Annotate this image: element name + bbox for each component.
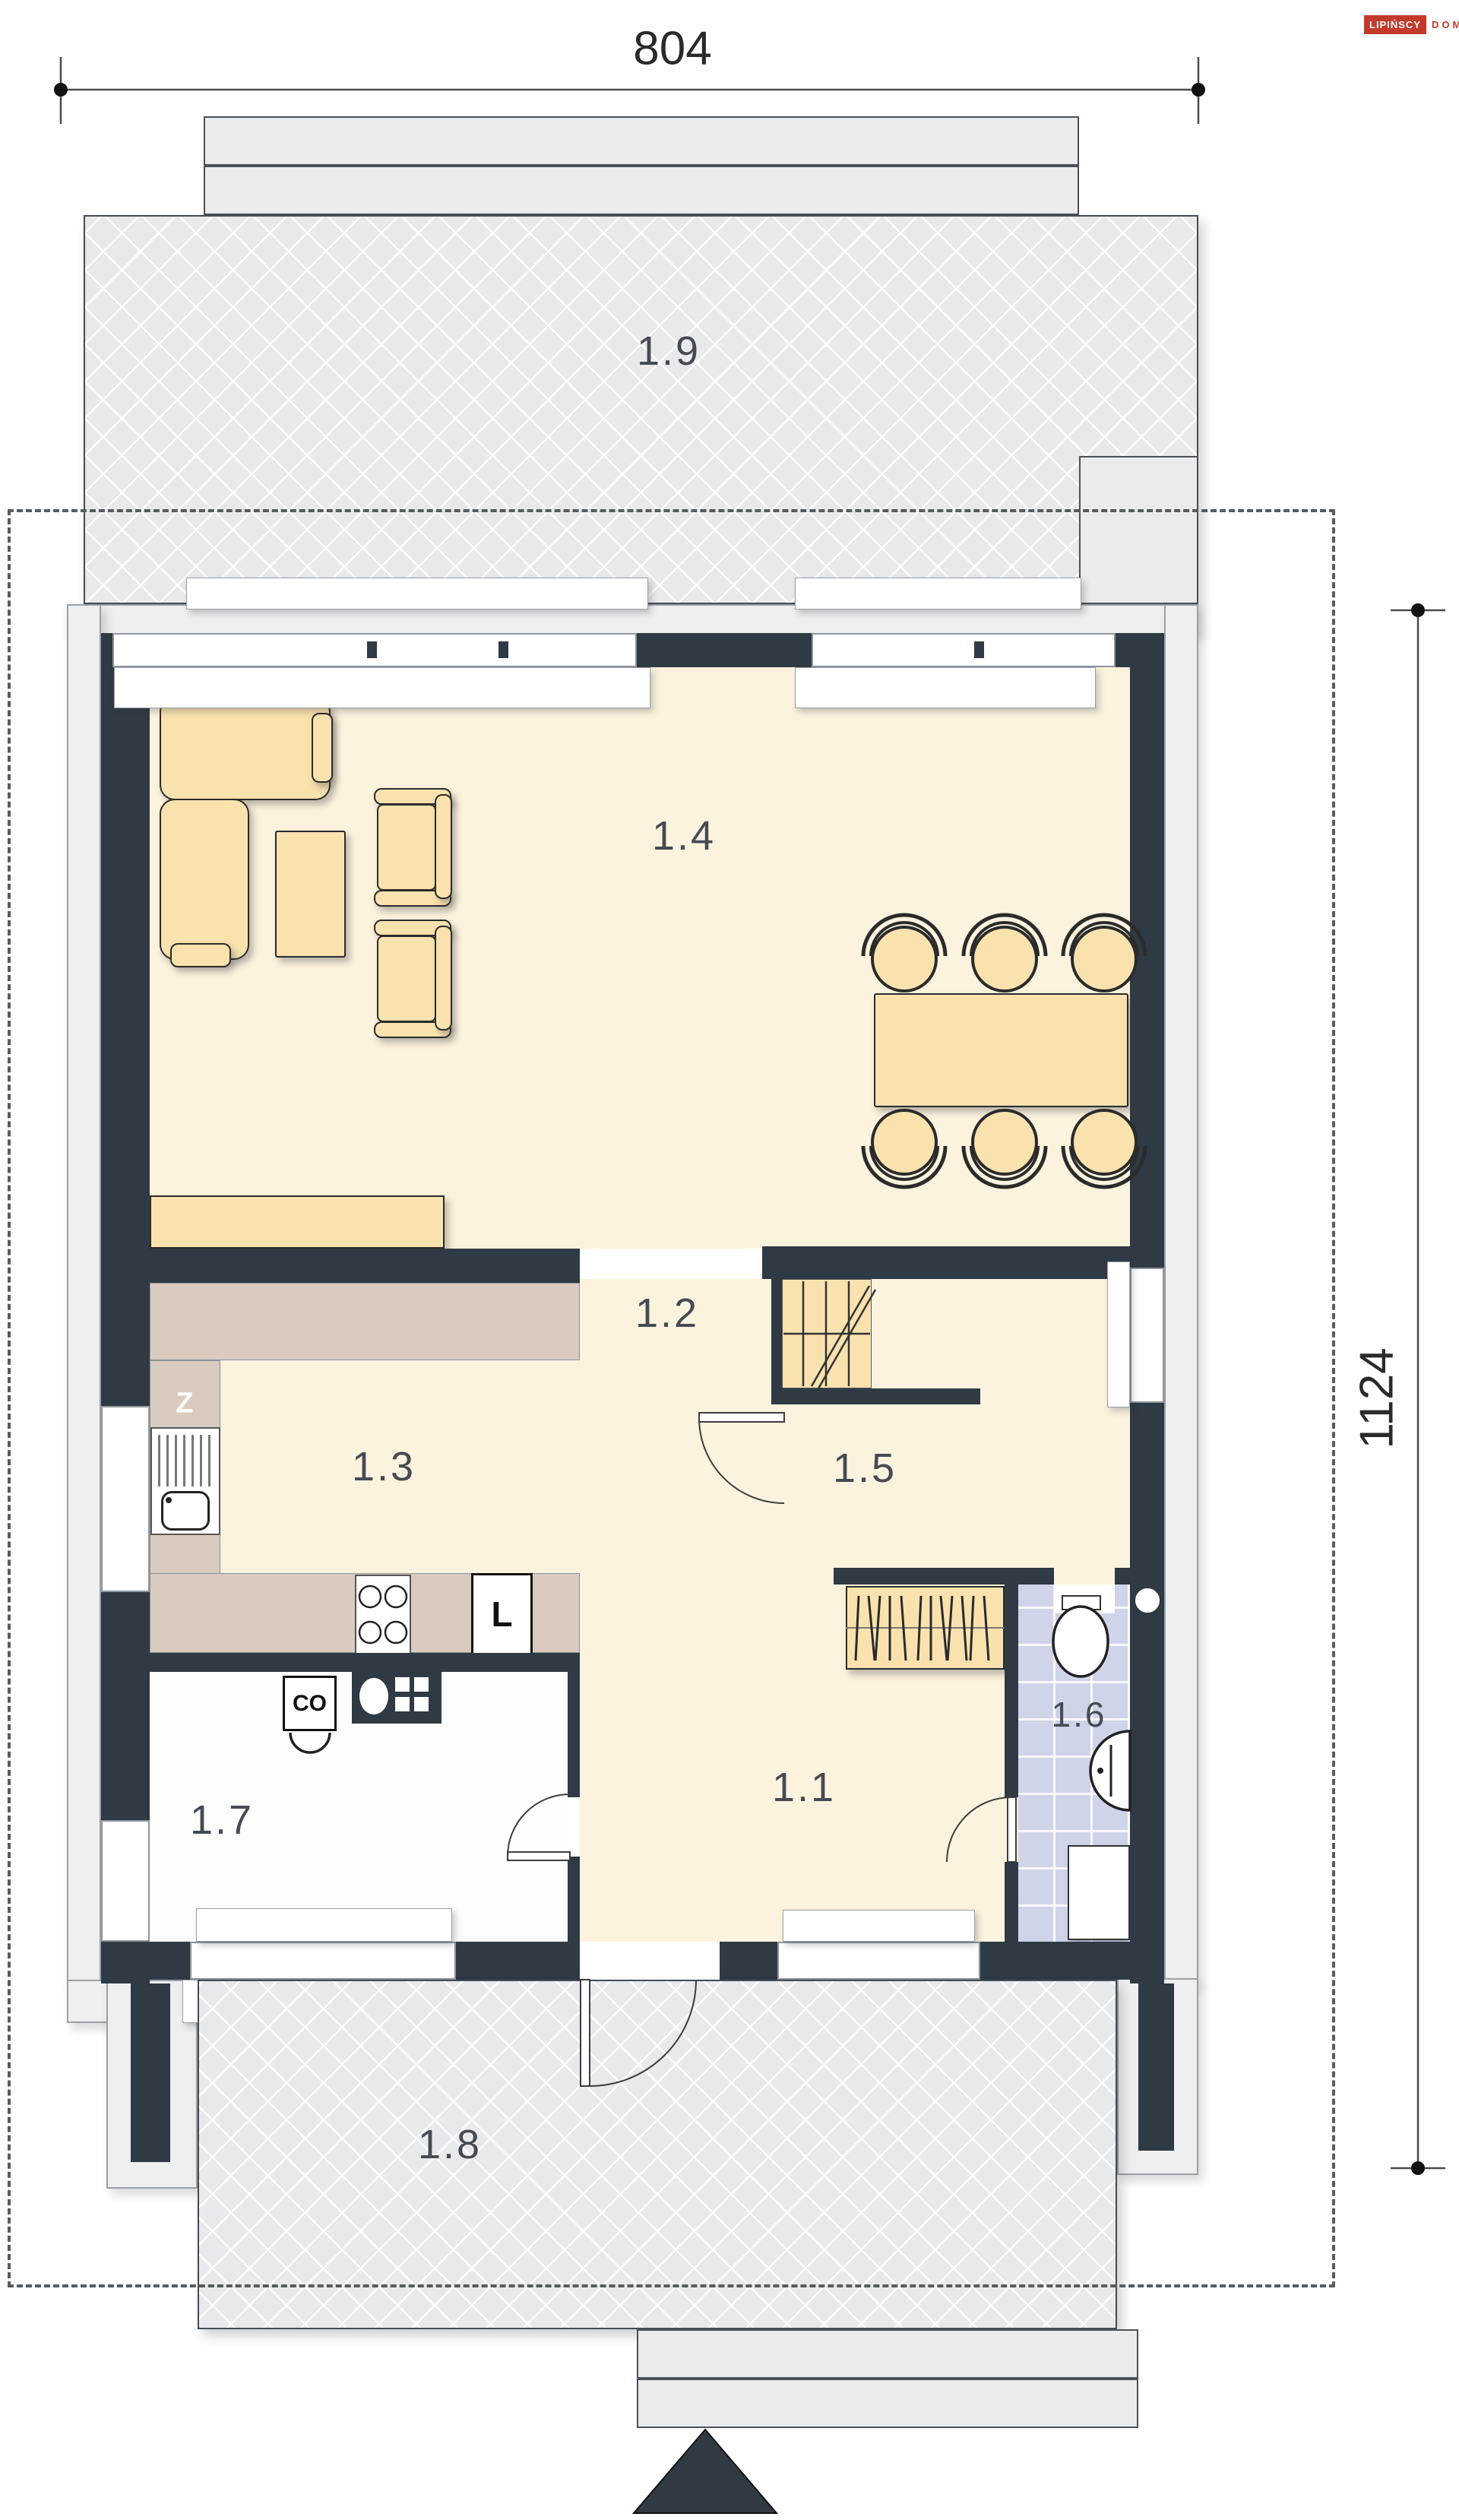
- room-label-1-7: 1.7: [190, 1797, 254, 1844]
- brand-logo-mark: LIPIŃSCY: [1364, 15, 1426, 34]
- room-label-1-9: 1.9: [637, 328, 701, 375]
- room-label-1-4: 1.4: [652, 812, 716, 860]
- dim-dot-top-left: [54, 83, 68, 97]
- bottom-steps-lower: [637, 2379, 1138, 2428]
- dimension-top: [61, 57, 1198, 124]
- top-steps-lower: [204, 166, 1079, 215]
- dimension-width-label: 804: [633, 22, 711, 76]
- brand-logo: LIPIŃSCY DOMY: [1364, 15, 1459, 34]
- floor-plan: Z L CO: [0, 0, 1459, 2520]
- dimension-height-label: 1124: [1350, 1347, 1404, 1448]
- room-label-1-6: 1.6: [1052, 1694, 1107, 1735]
- room-label-1-2: 1.2: [635, 1290, 699, 1337]
- dim-dot-right-top: [1411, 603, 1425, 617]
- bottom-steps-upper: [637, 2329, 1138, 2379]
- room-label-1-8: 1.8: [418, 2121, 482, 2168]
- brand-logo-suffix: DOMY: [1432, 19, 1459, 30]
- dim-dot-top-right: [1192, 83, 1205, 97]
- room-label-1-5: 1.5: [833, 1445, 897, 1492]
- room-label-1-3: 1.3: [352, 1443, 416, 1490]
- dim-dot-right-bottom: [1411, 2161, 1425, 2175]
- top-steps-upper: [204, 116, 1079, 166]
- property-boundary: [8, 509, 1335, 2287]
- entrance-arrow-icon: [634, 2430, 777, 2513]
- room-label-1-1: 1.1: [772, 1764, 836, 1811]
